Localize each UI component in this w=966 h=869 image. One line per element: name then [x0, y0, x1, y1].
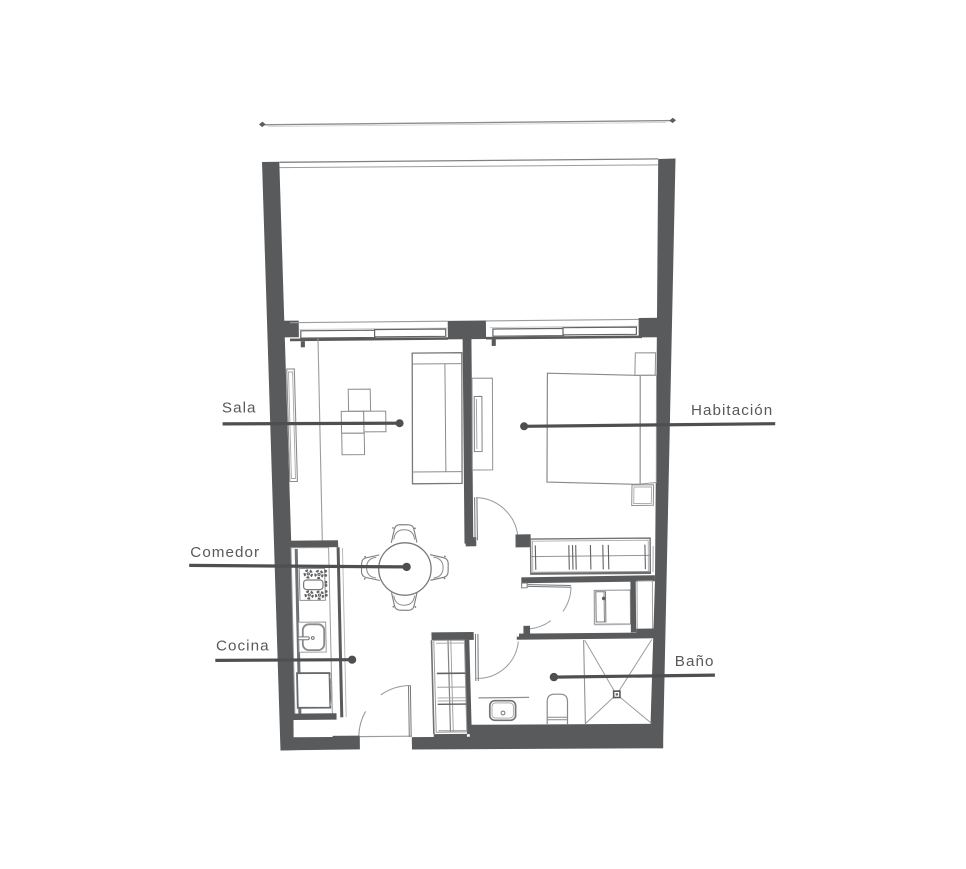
svg-text:Cocina: Cocina — [216, 637, 270, 654]
svg-text:Baño: Baño — [675, 653, 715, 670]
svg-text:Habitación: Habitación — [691, 402, 773, 419]
svg-text:Comedor: Comedor — [190, 544, 260, 561]
svg-text:Sala: Sala — [222, 400, 257, 417]
